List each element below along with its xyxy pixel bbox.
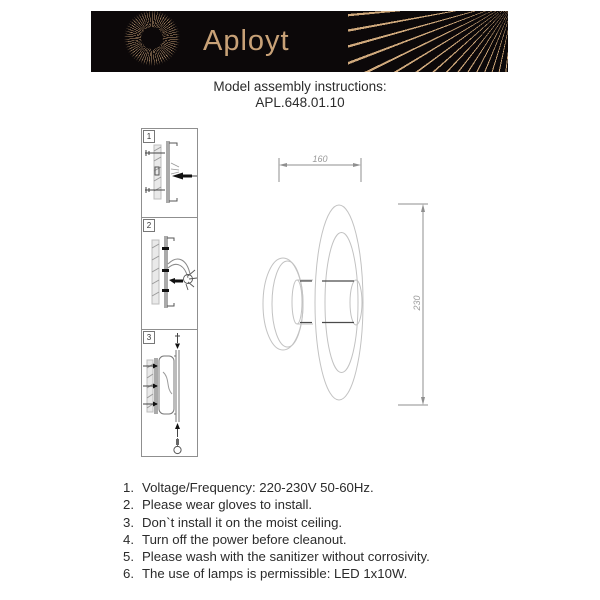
starburst-logo-core [141,27,163,49]
instruction-text: Don`t install it on the moist ceiling. [142,514,342,531]
instruction-number: 6. [117,565,134,582]
lamp-rod [300,281,354,323]
instruction-text: Please wash with the sanitizer without c… [142,548,430,565]
page-title: Model assembly instructions: [0,79,600,95]
instruction-text: Voltage/Frequency: 220-230V 50-60Hz. [142,479,374,496]
instruction-item: 1. Voltage/Frequency: 220-230V 50-60Hz. [117,479,517,496]
step-1-panel: 1 [141,128,198,218]
height-dimension-label: 230 [412,295,422,311]
instruction-item: 2. Please wear gloves to install. [117,496,517,513]
step-3-number: 3 [143,331,155,344]
instruction-item: 5. Please wash with the sanitizer withou… [117,548,517,565]
product-dimension-drawing: 160 230 [250,150,440,475]
step-3-panel: 3 [141,329,198,457]
assembly-steps-column: 1 2 [141,128,198,457]
step-2-panel: 2 [141,217,198,330]
brand-name: Aployt [203,24,290,58]
step-2-number: 2 [143,219,155,232]
instruction-number: 4. [117,531,134,548]
decorative-rays-icon [348,11,508,72]
instruction-item: 6. The use of lamps is permissible: LED … [117,565,517,582]
step-2-diagram [142,218,197,329]
instruction-item: 3. Don`t install it on the moist ceiling… [117,514,517,531]
step-3-diagram [142,330,197,456]
lamp-drawing: 160 230 [250,150,440,470]
lamp-outline [263,205,363,400]
instruction-text: Please wear gloves to install. [142,496,312,513]
screwdriver-glyph [174,438,181,454]
instruction-number: 2. [117,496,134,513]
instruction-list: 1. Voltage/Frequency: 220-230V 50-60Hz. … [117,479,517,583]
brand-banner: Aployt [91,11,508,72]
width-dimension-label: 160 [312,154,327,164]
instruction-item: 4. Turn off the power before cleanout. [117,531,517,548]
instruction-number: 1. [117,479,134,496]
instruction-number: 5. [117,548,134,565]
instruction-number: 3. [117,514,134,531]
instruction-text: Turn off the power before cleanout. [142,531,347,548]
model-number: APL.648.01.10 [0,95,600,111]
instruction-text: The use of lamps is permissible: LED 1x1… [142,565,407,582]
title-block: Model assembly instructions: APL.648.01.… [0,79,600,111]
step-1-number: 1 [143,130,155,143]
